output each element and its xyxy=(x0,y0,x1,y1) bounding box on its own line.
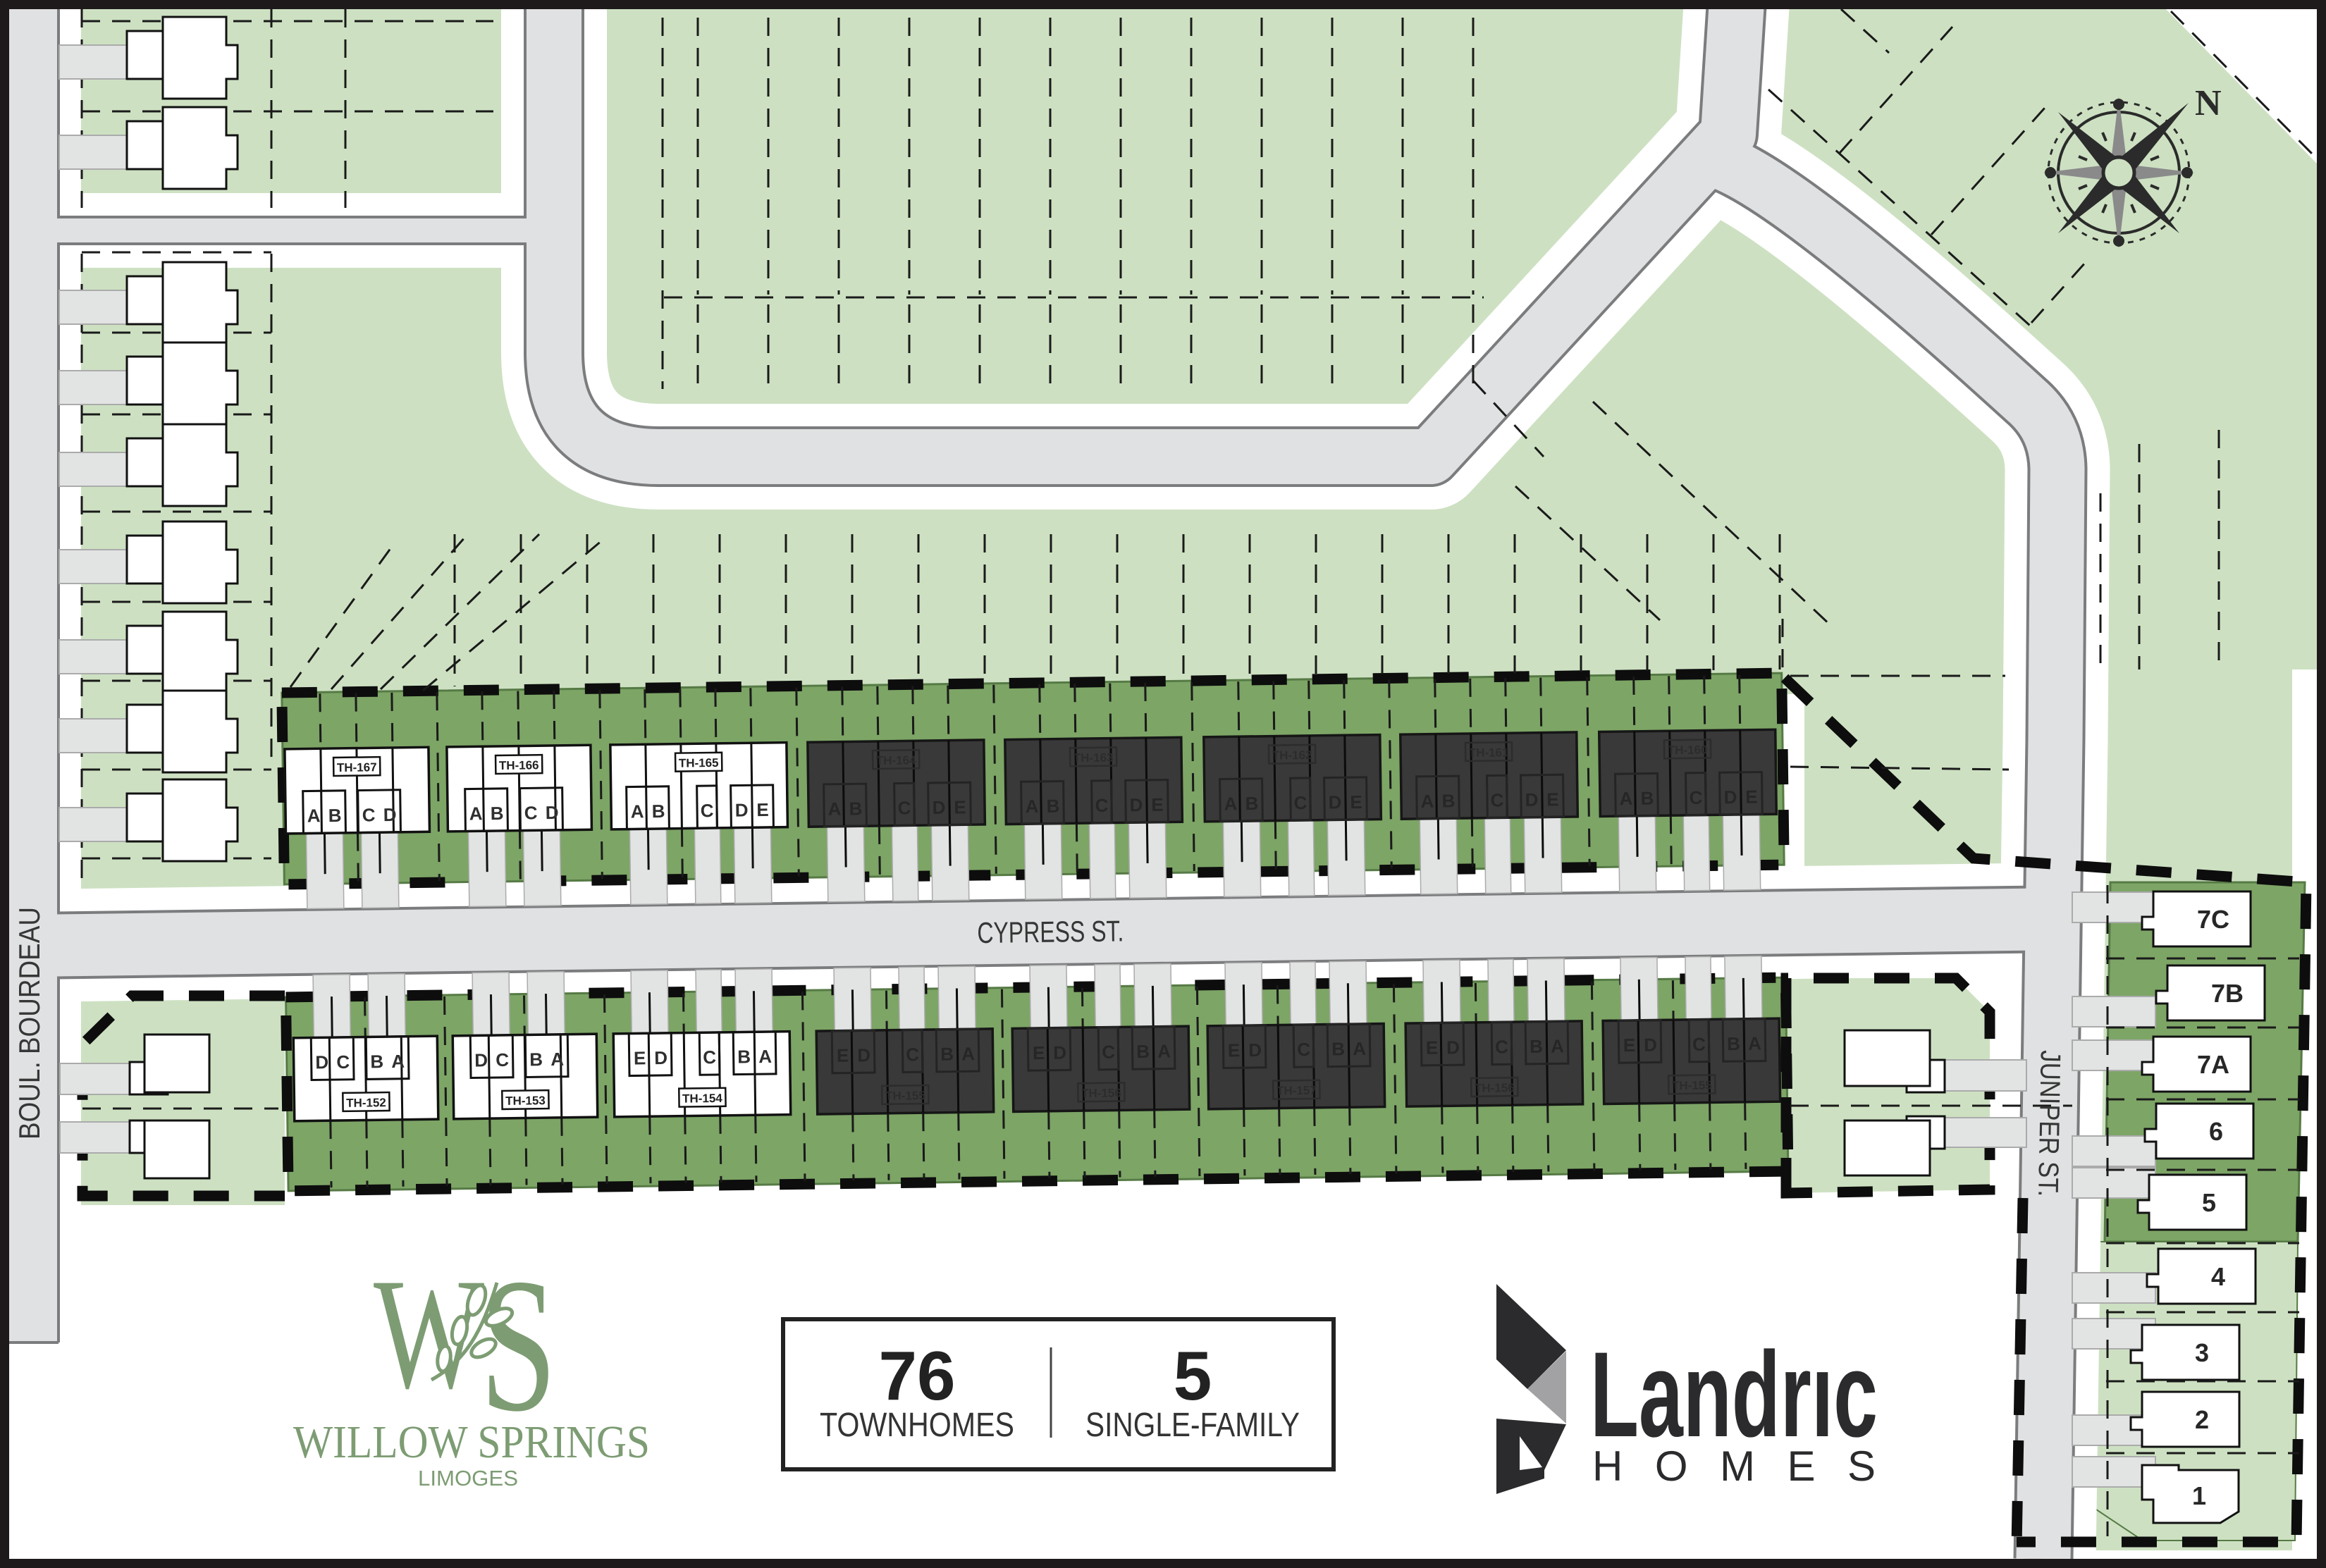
svg-text:TH-164: TH-164 xyxy=(876,753,916,767)
svg-text:E: E xyxy=(1228,1039,1241,1061)
svg-text:E: E xyxy=(1151,794,1164,815)
svg-text:4: 4 xyxy=(2211,1262,2225,1291)
svg-text:C: C xyxy=(1095,795,1108,816)
svg-text:A: A xyxy=(307,805,321,826)
svg-text:D: D xyxy=(857,1044,870,1066)
svg-text:B: B xyxy=(1530,1036,1543,1057)
svg-text:E: E xyxy=(1350,791,1362,813)
svg-text:TH-156: TH-156 xyxy=(1475,1081,1515,1095)
svg-text:D: D xyxy=(546,802,559,823)
svg-text:D: D xyxy=(1644,1034,1657,1055)
svg-text:7A: 7A xyxy=(2197,1050,2229,1079)
svg-text:D: D xyxy=(1129,794,1143,815)
svg-text:B: B xyxy=(370,1051,383,1072)
svg-text:A: A xyxy=(631,801,644,822)
svg-text:E: E xyxy=(1745,786,1758,808)
svg-text:B: B xyxy=(940,1044,954,1065)
svg-text:B: B xyxy=(328,805,342,826)
svg-text:B: B xyxy=(1441,790,1455,811)
svg-text:7B: 7B xyxy=(2211,979,2244,1008)
svg-text:TH-163: TH-163 xyxy=(1073,751,1114,765)
svg-text:E: E xyxy=(756,799,769,820)
svg-text:76: 76 xyxy=(878,1337,955,1414)
svg-text:B: B xyxy=(1245,793,1258,814)
svg-text:D: D xyxy=(383,804,397,825)
svg-text:A: A xyxy=(1420,791,1434,812)
svg-text:7C: 7C xyxy=(2197,905,2229,934)
svg-text:CYPRESS ST.: CYPRESS ST. xyxy=(977,914,1124,949)
svg-text:D: D xyxy=(932,797,945,818)
svg-text:E: E xyxy=(954,796,966,817)
svg-text:D: D xyxy=(1723,786,1737,808)
svg-text:B: B xyxy=(1640,788,1654,809)
svg-text:3: 3 xyxy=(2195,1338,2209,1367)
svg-text:WILLOW SPRINGS: WILLOW SPRINGS xyxy=(293,1416,650,1468)
svg-text:E: E xyxy=(1623,1035,1636,1056)
svg-text:B: B xyxy=(1727,1033,1740,1054)
svg-text:D: D xyxy=(315,1051,328,1073)
svg-text:D: D xyxy=(1053,1042,1066,1063)
svg-text:6: 6 xyxy=(2209,1117,2223,1146)
svg-text:E: E xyxy=(634,1047,646,1068)
svg-text:B: B xyxy=(491,803,504,824)
svg-text:TOWNHOMES: TOWNHOMES xyxy=(820,1407,1014,1444)
svg-text:5: 5 xyxy=(2202,1188,2216,1217)
svg-text:C: C xyxy=(1102,1042,1115,1063)
svg-text:A: A xyxy=(1224,793,1237,814)
svg-text:B: B xyxy=(1136,1041,1150,1062)
svg-text:SINGLE-FAMILY: SINGLE-FAMILY xyxy=(1085,1407,1300,1444)
svg-text:A: A xyxy=(961,1043,975,1064)
svg-text:TH-160: TH-160 xyxy=(1668,743,1708,758)
svg-text:JUNIPER ST.: JUNIPER ST. xyxy=(2032,1050,2066,1197)
svg-text:TH-157: TH-157 xyxy=(1276,1084,1317,1098)
svg-text:TH-156: TH-156 xyxy=(1081,1086,1121,1100)
svg-text:5: 5 xyxy=(1174,1337,1212,1414)
svg-text:A: A xyxy=(391,1051,405,1072)
svg-text:C: C xyxy=(1689,787,1702,808)
svg-text:E: E xyxy=(1546,789,1559,810)
svg-text:TH-153: TH-153 xyxy=(505,1094,546,1108)
svg-text:TH-155: TH-155 xyxy=(1672,1078,1712,1092)
svg-text:D: D xyxy=(654,1047,667,1068)
svg-text:A: A xyxy=(1619,788,1632,809)
svg-text:N: N xyxy=(2195,83,2222,123)
svg-text:A: A xyxy=(1353,1038,1366,1059)
svg-text:B: B xyxy=(1331,1038,1345,1059)
svg-text:D: D xyxy=(1525,789,1538,810)
svg-text:C: C xyxy=(897,797,911,818)
svg-text:D: D xyxy=(1248,1039,1262,1061)
svg-text:A: A xyxy=(1748,1033,1761,1054)
svg-text:B: B xyxy=(1046,796,1059,817)
svg-text:B: B xyxy=(849,798,862,819)
svg-text:LIMOGES: LIMOGES xyxy=(418,1466,518,1490)
svg-text:A: A xyxy=(758,1046,772,1067)
svg-text:A: A xyxy=(827,798,841,820)
svg-text:TH-165: TH-165 xyxy=(679,756,719,770)
svg-text:TH-167: TH-167 xyxy=(337,760,377,774)
svg-text:C: C xyxy=(703,1047,716,1068)
svg-text:E: E xyxy=(837,1044,849,1066)
svg-text:TH-152: TH-152 xyxy=(346,1096,386,1110)
svg-text:A: A xyxy=(550,1049,564,1070)
svg-text:C: C xyxy=(1495,1036,1508,1057)
svg-text:A: A xyxy=(1157,1041,1171,1062)
svg-text:C: C xyxy=(1293,792,1307,813)
svg-text:C: C xyxy=(496,1049,509,1070)
svg-text:D: D xyxy=(1446,1037,1460,1058)
svg-text:C: C xyxy=(524,802,538,823)
svg-text:TH-154: TH-154 xyxy=(682,1092,722,1106)
svg-text:C: C xyxy=(1490,789,1503,810)
svg-text:D: D xyxy=(734,799,748,820)
svg-text:B: B xyxy=(652,801,665,822)
svg-text:E: E xyxy=(1033,1042,1045,1063)
svg-text:TH-166: TH-166 xyxy=(499,758,539,772)
svg-text:A: A xyxy=(1551,1035,1564,1056)
svg-text:D: D xyxy=(474,1049,488,1070)
svg-text:TH-162: TH-162 xyxy=(1272,748,1312,763)
svg-text:C: C xyxy=(906,1044,919,1065)
svg-text:C: C xyxy=(1692,1034,1706,1055)
svg-text:E: E xyxy=(1426,1037,1439,1058)
svg-text:A: A xyxy=(1025,796,1038,817)
svg-text:2: 2 xyxy=(2195,1405,2209,1434)
svg-text:B: B xyxy=(737,1046,751,1067)
svg-text:BOUL. BOURDEAU: BOUL. BOURDEAU xyxy=(13,907,46,1140)
svg-text:A: A xyxy=(469,803,483,824)
svg-text:C: C xyxy=(362,804,376,825)
svg-text:C: C xyxy=(701,800,714,821)
svg-text:TH-161: TH-161 xyxy=(1469,746,1509,760)
svg-text:C: C xyxy=(336,1051,350,1073)
svg-text:C: C xyxy=(1297,1039,1310,1060)
svg-text:TH-155: TH-155 xyxy=(885,1089,925,1103)
svg-text:B: B xyxy=(529,1049,543,1070)
svg-text:1: 1 xyxy=(2192,1481,2206,1510)
svg-text:D: D xyxy=(1328,791,1341,813)
